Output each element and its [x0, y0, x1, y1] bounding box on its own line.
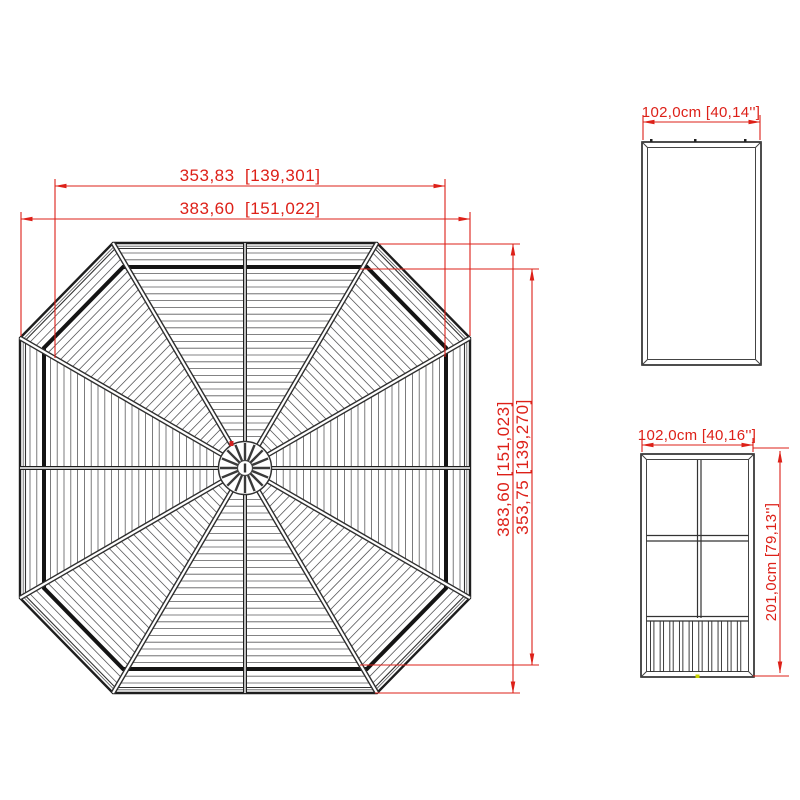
- roof-panel-outer-frame: [642, 142, 761, 365]
- wall-panel-front-view: [641, 454, 754, 678]
- gazebo-technical-drawing: 353,83 [139,301] 383,60 [151,022] 383,60…: [0, 0, 800, 800]
- dim-text-wall-panel-height: 201,0cm [79,13'']: [763, 503, 780, 621]
- roof-panel-side-view: [642, 139, 761, 365]
- dim-wall-panel-width: 102,0cm [40,16'']: [638, 427, 756, 452]
- dim-text-roof-width-overall: 383,60 [151,022]: [180, 199, 321, 218]
- red-reference-mark: [230, 441, 234, 446]
- dim-text-roof-height-overall: 383,60 [151,023]: [494, 401, 513, 537]
- dim-roof-width-top: 353,83 [139,301]: [55, 166, 445, 358]
- dim-roof-panel-width: 102,0cm [40,14'']: [642, 104, 760, 140]
- dim-text-wall-panel-width: 102,0cm [40,16'']: [638, 427, 756, 444]
- dim-text-roof-width-top: 353,83 [139,301]: [180, 166, 321, 185]
- dim-text-roof-height-inner: 353,75 [139,270]: [513, 399, 532, 535]
- roof-center-hub: [219, 442, 272, 495]
- dim-text-roof-panel-width: 102,0cm [40,14'']: [642, 104, 760, 121]
- dim-wall-panel-height: 201,0cm [79,13'']: [753, 448, 789, 676]
- yellow-reference-mark: [696, 675, 700, 679]
- drawing-sheet: 353,83 [139,301] 383,60 [151,022] 383,60…: [0, 0, 800, 800]
- gazebo-roof-plan-view: [0, 202, 510, 733]
